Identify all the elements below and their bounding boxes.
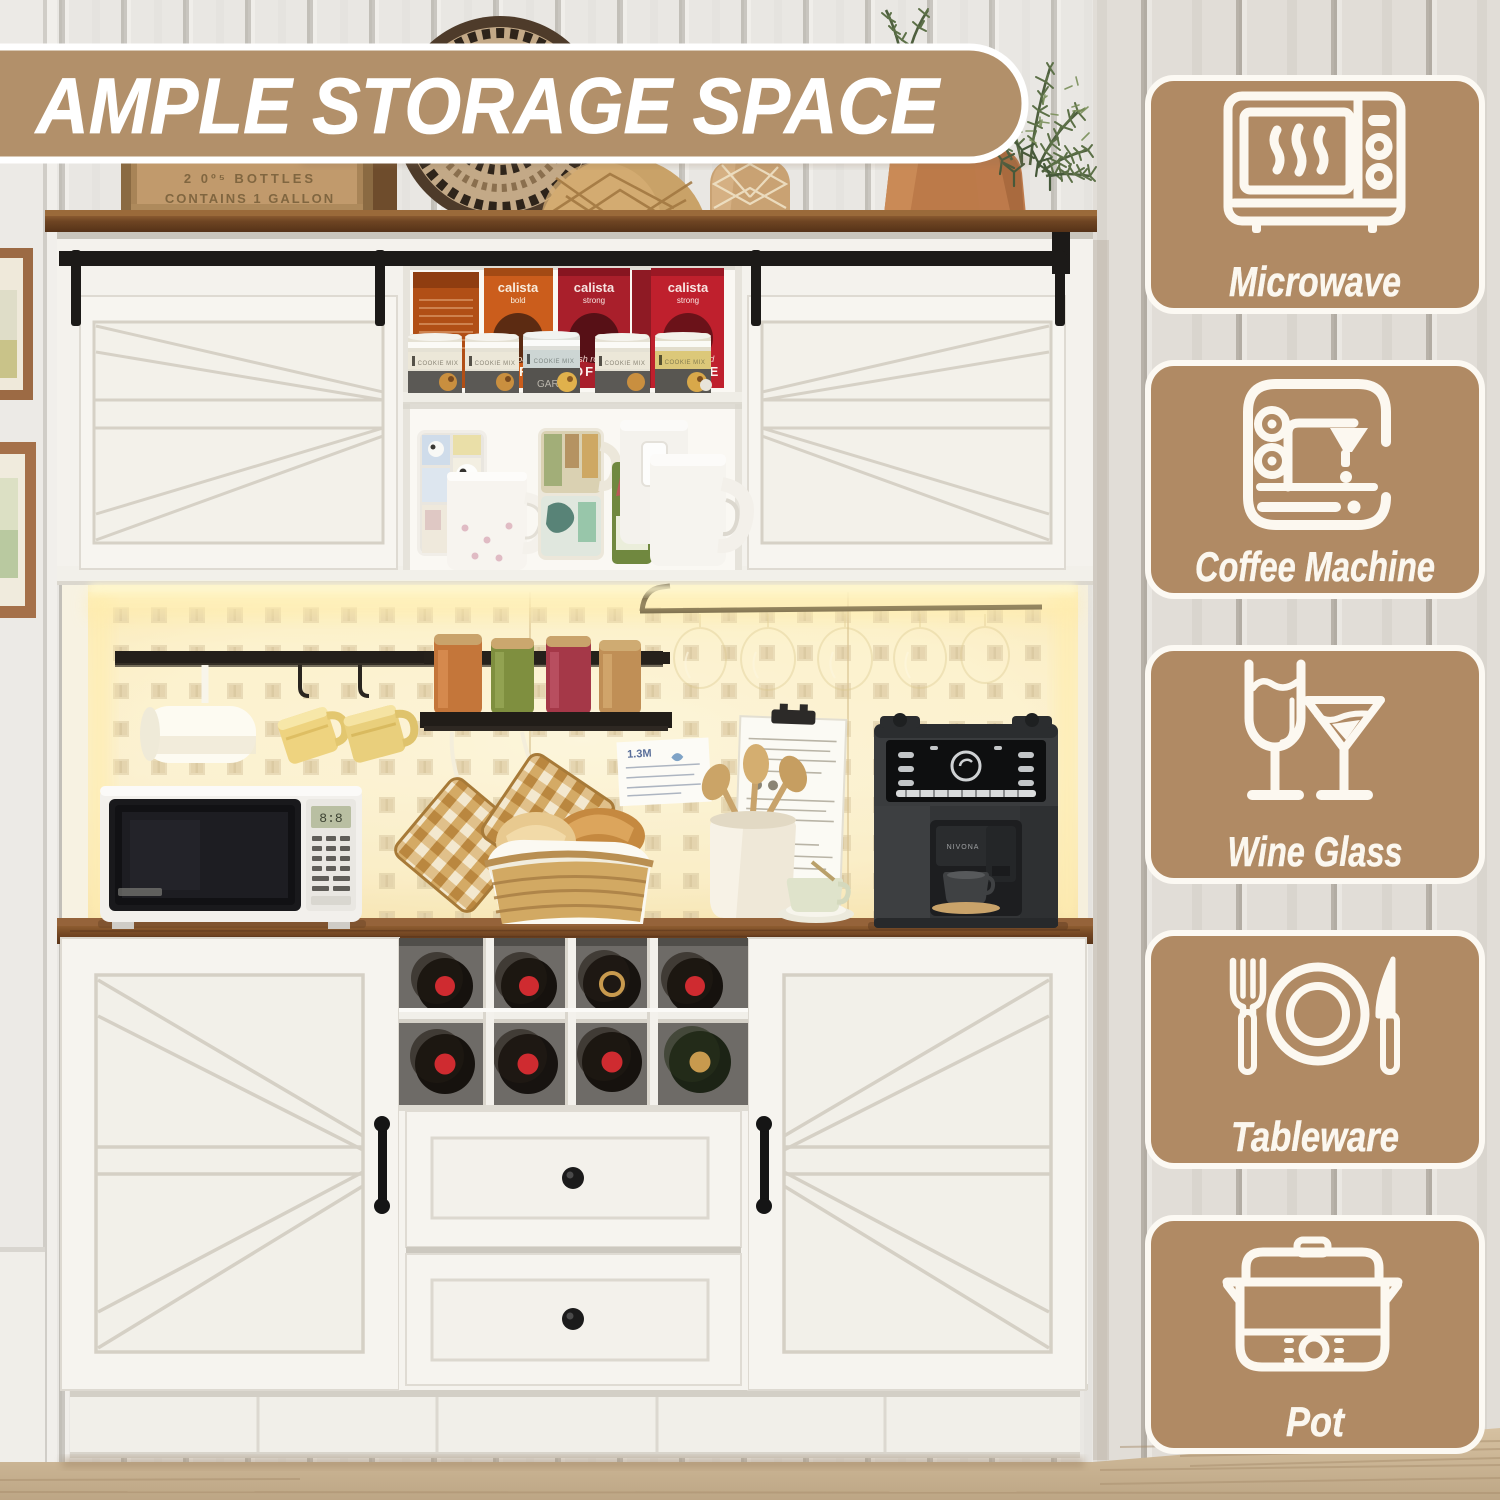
svg-text:GAR: GAR [537, 379, 559, 390]
svg-text:AMPLE STORAGE SPACE: AMPLE STORAGE SPACE [34, 61, 941, 150]
svg-text:Wine Glass: Wine Glass [1228, 828, 1403, 875]
svg-text:Tableware: Tableware [1231, 1113, 1399, 1160]
svg-text:COOKIE MIX: COOKIE MIX [418, 361, 459, 367]
svg-text:1.3M: 1.3M [627, 748, 652, 761]
svg-text:calista: calista [498, 280, 539, 295]
svg-text:calista: calista [668, 280, 709, 295]
svg-text:CONTAINS 1 GALLON: CONTAINS 1 GALLON [165, 191, 335, 206]
svg-text:COOKIE MIX: COOKIE MIX [534, 359, 575, 365]
svg-text:COOKIE MIX: COOKIE MIX [665, 360, 706, 366]
svg-text:Microwave: Microwave [1229, 258, 1401, 305]
svg-text:strong: strong [583, 296, 605, 305]
svg-text:strong: strong [677, 296, 699, 305]
svg-text:Pot: Pot [1286, 1398, 1346, 1445]
svg-text:Coffee Machine: Coffee Machine [1195, 543, 1435, 590]
svg-text:2 0º⁵ BOTTLES: 2 0º⁵ BOTTLES [184, 171, 316, 186]
svg-text:NIVONA: NIVONA [947, 844, 980, 851]
svg-text:bold: bold [510, 296, 525, 305]
svg-text:COOKIE MIX: COOKIE MIX [605, 361, 646, 367]
svg-text:calista: calista [574, 280, 615, 295]
svg-text:8:8: 8:8 [319, 811, 342, 826]
